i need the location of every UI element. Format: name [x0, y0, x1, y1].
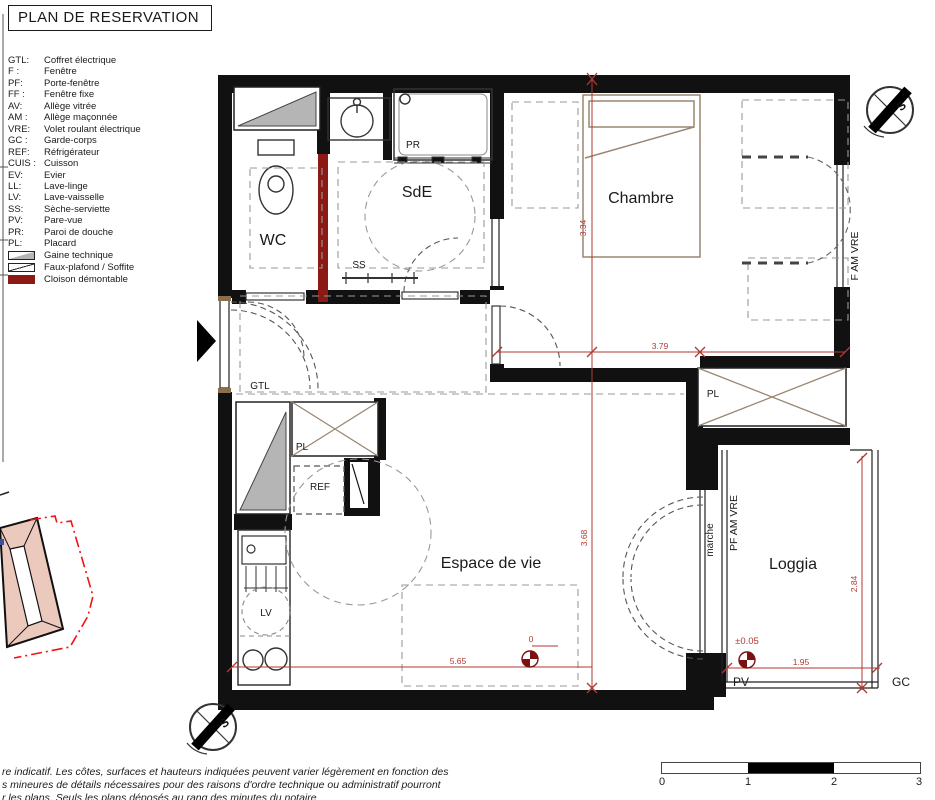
label-lv: LV [260, 608, 272, 619]
page-title: PLAN DE RESERVATION [8, 5, 212, 31]
cloison-demontable-swatch [8, 275, 35, 284]
scale-bar: 0 1 2 3 [661, 762, 919, 790]
shower [394, 89, 492, 163]
legend-row: PF:Porte-fenêtre [8, 78, 141, 89]
dim-espace-h: 3.68 [579, 529, 589, 546]
disclaimer-line: r les plans. Seuls les plans déposés au … [2, 792, 488, 800]
label-gc: GC [892, 675, 910, 689]
disclaimer-text: re indicatif. Les côtes, surfaces et hau… [2, 766, 488, 800]
scale-tick: 2 [831, 776, 837, 788]
towel-dryer [342, 272, 418, 284]
legend-row: FF :Fenêtre fixe [8, 89, 141, 100]
label-pr: PR [406, 140, 420, 151]
label-ss: SS [352, 260, 366, 271]
bed [583, 95, 700, 257]
dim-level-zero: 0 [529, 634, 534, 644]
dim-chambre-w: 3.79 [652, 341, 669, 351]
label-f-am-vre: F AM VRE [849, 231, 861, 280]
compass-north-bottom: S [187, 704, 236, 754]
scale-bar-segments [661, 762, 921, 774]
label-ref: REF [310, 482, 330, 493]
room-label-loggia: Loggia [769, 556, 817, 573]
room-label-wc: WC [260, 232, 287, 249]
dim-level-loggia: ±0.05 [735, 636, 759, 647]
entrance-door [197, 296, 318, 393]
wardrobe-doors [742, 157, 850, 263]
disclaimer-line: s mineures de détails nécessaires pour d… [2, 779, 488, 792]
dim-loggia-w: 1.95 [793, 657, 810, 667]
legend-row: EV:Evier [8, 170, 141, 181]
legend-row: SS:Sèche-serviette [8, 204, 141, 215]
legend-row: VRE:Volet roulant électrique [8, 124, 141, 135]
cloison-demontable [318, 154, 328, 302]
legend-row: CUIS :Cuisson [8, 158, 141, 169]
scale-tick: 0 [659, 776, 665, 788]
room-label-sde: SdE [402, 184, 432, 201]
level-marker-loggia [739, 652, 755, 668]
legend-row: LL:Lave-linge [8, 181, 141, 192]
fridge-nook [294, 462, 368, 514]
level-marker-zero [522, 651, 538, 667]
legend-row: LV:Lave-vaisselle [8, 192, 141, 203]
dim-espace-w: 5.65 [450, 656, 467, 666]
gaine-technique-swatch [8, 251, 35, 260]
placard-chambre [698, 368, 846, 426]
toilet [258, 140, 294, 214]
loggia-door-swings [623, 497, 703, 659]
legend-row: PL:Placard [8, 238, 141, 249]
room-label-espace: Espace de vie [441, 555, 542, 572]
site-plan-fragment [0, 492, 93, 658]
label-pl-kitchen: PL [296, 442, 309, 453]
legend-row: AV:Allège vitrée [8, 101, 141, 112]
legend-row: GC :Garde-corps [8, 135, 141, 146]
label-pf-am-vre: PF AM VRE [728, 495, 740, 551]
legend-row: REF:Réfrigérateur [8, 147, 141, 158]
label-marche: marche [705, 523, 716, 557]
legend-symbol-row: Gaine technique [8, 250, 141, 262]
entrance-arrow-icon [197, 320, 216, 362]
washbasin [328, 98, 390, 140]
door-swings [248, 238, 560, 366]
legend-row: F :Fenêtre [8, 66, 141, 77]
legend: GTL:Coffret électrique F :Fenêtre PF:Por… [8, 55, 141, 286]
legend-row: AM :Allège maçonnée [8, 112, 141, 123]
legend-row: GTL:Coffret électrique [8, 55, 141, 66]
compass-south-label: S [217, 715, 232, 731]
disclaimer-line: re indicatif. Les côtes, surfaces et hau… [2, 766, 488, 779]
compass-north-top: S [864, 87, 913, 137]
label-pl-chambre: PL [707, 389, 720, 400]
plan-sheet: S S WC SdE Chambre Espace de vie Loggia … [0, 0, 935, 800]
dim-loggia-h: 2.84 [849, 575, 859, 592]
room-label-chambre: Chambre [608, 190, 674, 207]
scale-tick: 1 [745, 776, 751, 788]
faux-plafond-swatch [8, 263, 35, 272]
legend-row: PR:Paroi de douche [8, 227, 141, 238]
label-gtl: GTL [250, 381, 270, 392]
legend-row: PV:Pare-vue [8, 215, 141, 226]
dim-chambre-h: 3.34 [578, 219, 588, 236]
label-pv: PV [733, 675, 749, 689]
legend-symbol-row: Faux-plafond / Soffite [8, 262, 141, 274]
scale-tick: 3 [916, 776, 922, 788]
compass-south-label: S [894, 98, 909, 114]
scale-bar-labels: 0 1 2 3 [661, 776, 919, 790]
legend-symbol-row: Cloison démontable [8, 274, 141, 286]
